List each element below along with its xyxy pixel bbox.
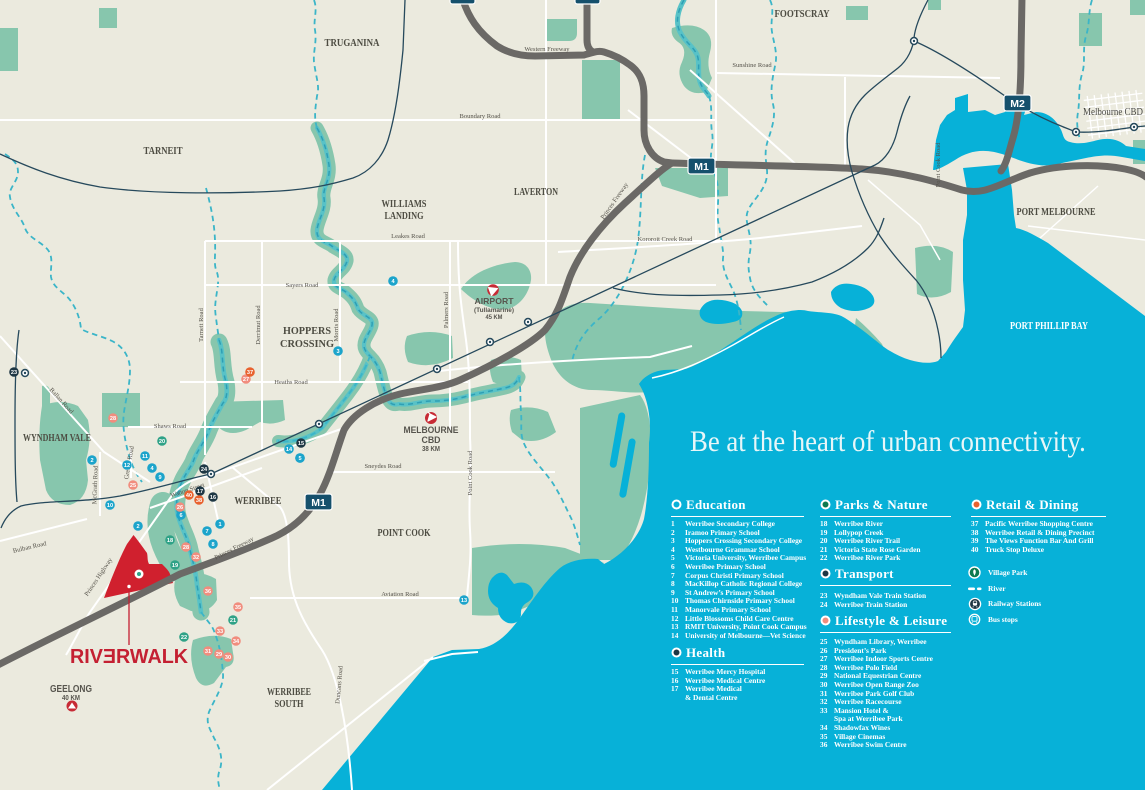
svg-text:19: 19	[172, 563, 178, 569]
svg-text:Morris Road: Morris Road	[333, 308, 340, 342]
svg-text:24: 24	[201, 467, 208, 473]
svg-text:WYNDHAM VALE: WYNDHAM VALE	[23, 433, 91, 444]
svg-text:1: 1	[218, 522, 221, 528]
svg-text:16: 16	[210, 495, 216, 501]
svg-text:CBD: CBD	[422, 435, 441, 446]
svg-text:POINT COOK: POINT COOK	[378, 528, 432, 539]
svg-text:Boundary Road: Boundary Road	[460, 113, 502, 120]
svg-text:WERRIBEE: WERRIBEE	[267, 687, 311, 698]
svg-text:18: 18	[167, 538, 173, 544]
svg-text:14: 14	[286, 447, 293, 453]
svg-text:Sunshine Road: Sunshine Road	[732, 62, 772, 69]
svg-text:31: 31	[205, 649, 211, 655]
svg-text:2: 2	[136, 524, 139, 530]
svg-text:Sayers Road: Sayers Road	[286, 282, 319, 289]
svg-text:M1: M1	[694, 161, 709, 173]
svg-text:28: 28	[183, 545, 189, 551]
svg-text:27: 27	[243, 377, 249, 383]
svg-text:Point Cook Road: Point Cook Road	[935, 142, 942, 188]
svg-text:GEELONG: GEELONG	[50, 684, 92, 695]
svg-text:34: 34	[233, 639, 240, 645]
svg-text:HOPPERS: HOPPERS	[283, 326, 331, 337]
svg-text:TRUGANINA: TRUGANINA	[325, 38, 380, 49]
svg-text:AIRPORT: AIRPORT	[475, 296, 515, 306]
svg-text:11: 11	[142, 454, 148, 460]
svg-text:CROSSING: CROSSING	[280, 339, 334, 350]
svg-text:Tarneit Road: Tarneit Road	[198, 307, 205, 341]
svg-text:M2: M2	[1010, 98, 1025, 110]
svg-text:Shaws Road: Shaws Road	[154, 423, 187, 430]
svg-text:22: 22	[181, 635, 187, 641]
svg-text:36: 36	[205, 589, 211, 595]
svg-text:7: 7	[205, 529, 208, 535]
svg-text:32: 32	[193, 555, 199, 561]
svg-text:TARNEIT: TARNEIT	[144, 146, 183, 157]
svg-text:26: 26	[177, 505, 183, 511]
svg-text:Melbourne CBD: Melbourne CBD	[1083, 107, 1143, 118]
svg-text:Aviation Road: Aviation Road	[381, 591, 419, 598]
svg-text:Derrimut Road: Derrimut Road	[255, 305, 262, 345]
svg-text:Point Cook Road: Point Cook Road	[467, 450, 474, 496]
svg-text:10: 10	[107, 503, 113, 509]
svg-text:35: 35	[235, 605, 241, 611]
svg-text:Heaths Road: Heaths Road	[274, 379, 308, 386]
svg-text:12: 12	[124, 463, 130, 469]
svg-text:M1: M1	[311, 497, 326, 509]
svg-text:LAVERTON: LAVERTON	[514, 187, 558, 198]
svg-text:15: 15	[298, 441, 304, 447]
svg-text:LANDING: LANDING	[385, 211, 424, 222]
svg-text:5: 5	[298, 456, 301, 462]
svg-text:McGrath Road: McGrath Road	[91, 465, 99, 505]
svg-text:38: 38	[196, 498, 202, 504]
svg-text:FOOTSCRAY: FOOTSCRAY	[775, 9, 830, 20]
svg-text:21: 21	[230, 618, 236, 624]
svg-text:45 KM: 45 KM	[486, 314, 503, 321]
svg-text:28: 28	[110, 416, 116, 422]
svg-text:30: 30	[225, 655, 231, 661]
svg-text:17: 17	[197, 489, 203, 495]
svg-text:8: 8	[211, 542, 214, 548]
svg-text:38 KM: 38 KM	[422, 446, 440, 453]
svg-text:PORT PHILLIP BAY: PORT PHILLIP BAY	[1010, 321, 1089, 332]
svg-text:29: 29	[216, 652, 222, 658]
svg-text:Palmers Road: Palmers Road	[443, 291, 450, 328]
svg-text:3: 3	[336, 349, 339, 355]
svg-text:20: 20	[159, 439, 165, 445]
svg-text:23: 23	[11, 370, 17, 376]
svg-text:WERRIBEE: WERRIBEE	[235, 496, 282, 507]
svg-text:SOUTH: SOUTH	[275, 699, 304, 710]
svg-text:RIVƎRWALK: RIVƎRWALK	[70, 646, 189, 668]
svg-text:Western Freeway: Western Freeway	[524, 46, 570, 53]
svg-text:6: 6	[179, 513, 182, 519]
svg-text:37: 37	[247, 370, 253, 376]
svg-text:Leakes Road: Leakes Road	[391, 233, 426, 240]
svg-text:9: 9	[158, 475, 161, 481]
svg-text:PORT MELBOURNE: PORT MELBOURNE	[1017, 207, 1096, 218]
svg-text:40: 40	[186, 493, 192, 499]
svg-text:13: 13	[461, 598, 467, 604]
svg-text:2: 2	[90, 458, 93, 464]
svg-text:(Tullamarine): (Tullamarine)	[474, 307, 514, 314]
svg-text:25: 25	[130, 483, 136, 489]
svg-text:Kororoit Creek Road: Kororoit Creek Road	[638, 236, 694, 243]
svg-text:33: 33	[217, 629, 223, 635]
svg-text:WILLIAMS: WILLIAMS	[382, 199, 427, 210]
svg-text:Sneydes Road: Sneydes Road	[364, 463, 402, 470]
